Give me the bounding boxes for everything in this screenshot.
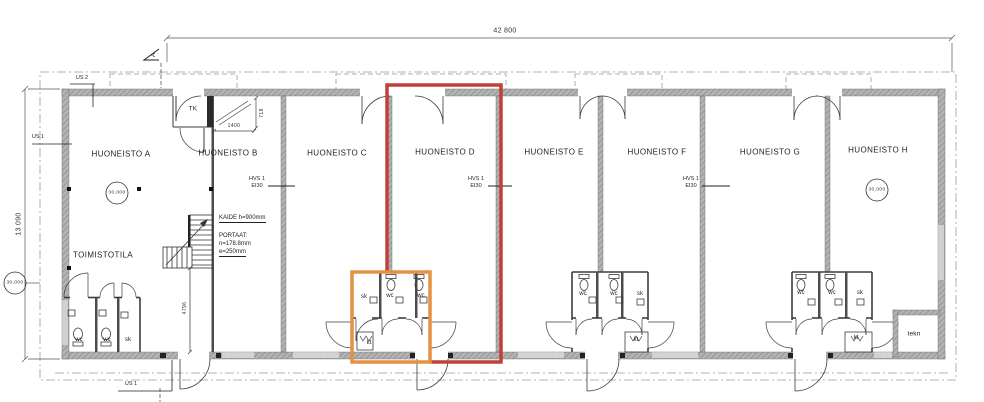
overall-height-dimension: 13 090 [16, 212, 23, 235]
wc-label: wc [386, 293, 394, 299]
orange-highlight-annotation [352, 272, 430, 362]
stairs [163, 215, 212, 352]
wc-label: wc [828, 290, 836, 296]
sk-label: sk [125, 337, 131, 343]
floor-plan-svg [0, 0, 984, 402]
room-label-huoneisto-d: HUONEISTO D [415, 148, 475, 157]
wall-tag-ei30-1: EI30 [251, 183, 262, 189]
wall-tag-us1-left: US 1 [32, 134, 44, 140]
room-label-huoneisto-g: HUONEISTO G [740, 148, 800, 157]
kt-label: kt [854, 335, 859, 341]
sk-label: sk [637, 291, 643, 297]
wc-label: wc [797, 290, 805, 296]
wc-label: wc [75, 337, 83, 343]
wall-tag-hvs-1: HVS 1 [249, 176, 265, 182]
overall-width-dimension: 42 800 [493, 28, 516, 35]
wc-label: wc [610, 291, 618, 297]
wall-tag-ei30-2: EI30 [470, 183, 481, 189]
wc-label: wc [103, 337, 111, 343]
room-label-huoneisto-f: HUONEISTO F [628, 148, 687, 157]
grid-bubbles [4, 179, 888, 294]
wc-label: wc [417, 293, 425, 299]
sk-label: sk [857, 290, 863, 296]
stair-note-riser: n=178.8mm [219, 241, 251, 247]
wall-tag-us1-bottom: US 1 [125, 381, 137, 387]
stair-note-going: e=250mm [219, 249, 246, 257]
unit-divider-walls [281, 96, 830, 352]
red-highlight-annotation [387, 85, 501, 362]
stair-note-portaat: PORTAAT: [219, 233, 247, 239]
section-marker-label: A [151, 53, 157, 57]
wc-label: wc [579, 291, 587, 297]
room-label-huoneisto-e: HUONEISTO E [524, 148, 583, 157]
grid-bubble-value-a: 30,000 [108, 191, 125, 196]
room-label-huoneisto-a: HUONEISTO A [92, 150, 151, 159]
stair-depth-dimension: 718 [259, 108, 265, 118]
floor-plan-page: HUONEISTO A HUONEISTO B HUONEISTO C HUON… [0, 0, 984, 402]
bay-depth-dimension: 4796 [182, 302, 188, 315]
wall-door-openings [173, 88, 842, 360]
wall-tag-hvs-2: HVS 1 [468, 176, 484, 182]
room-label-tk: TK [189, 106, 198, 113]
room-label-huoneisto-h: HUONEISTO H [848, 146, 908, 155]
us-tag-leaders [32, 84, 172, 391]
stair-width-dimension: 1400 [228, 123, 241, 129]
wall-tag-hvs-3: HVS 1 [683, 176, 699, 182]
grid-bubble-value-left: 30,000 [6, 281, 23, 286]
room-label-toimistotila: TOIMISTOTILA [73, 251, 133, 260]
room-label-huoneisto-b: HUONEISTO B [198, 149, 257, 158]
exterior-doors-bottom [180, 359, 827, 391]
room-label-huoneisto-c: HUONEISTO C [307, 149, 367, 158]
sk-label: sk [361, 294, 367, 300]
wet-block-cd [326, 272, 456, 352]
stair-note-kaide: KAIDE h=900mm [219, 215, 266, 223]
kt-label: kt [367, 340, 372, 346]
wet-block-gh [766, 272, 898, 352]
room-label-tekn: tekn [907, 331, 920, 338]
wall-tag-ei30-3: EI30 [685, 183, 696, 189]
wet-block-ef [546, 272, 674, 352]
section-marker [144, 49, 161, 402]
grid-bubble-value-h: 30,000 [868, 188, 885, 193]
kt-label: kt [634, 337, 639, 343]
tk-room [173, 96, 212, 152]
wall-tag-us2: US 2 [76, 75, 88, 81]
